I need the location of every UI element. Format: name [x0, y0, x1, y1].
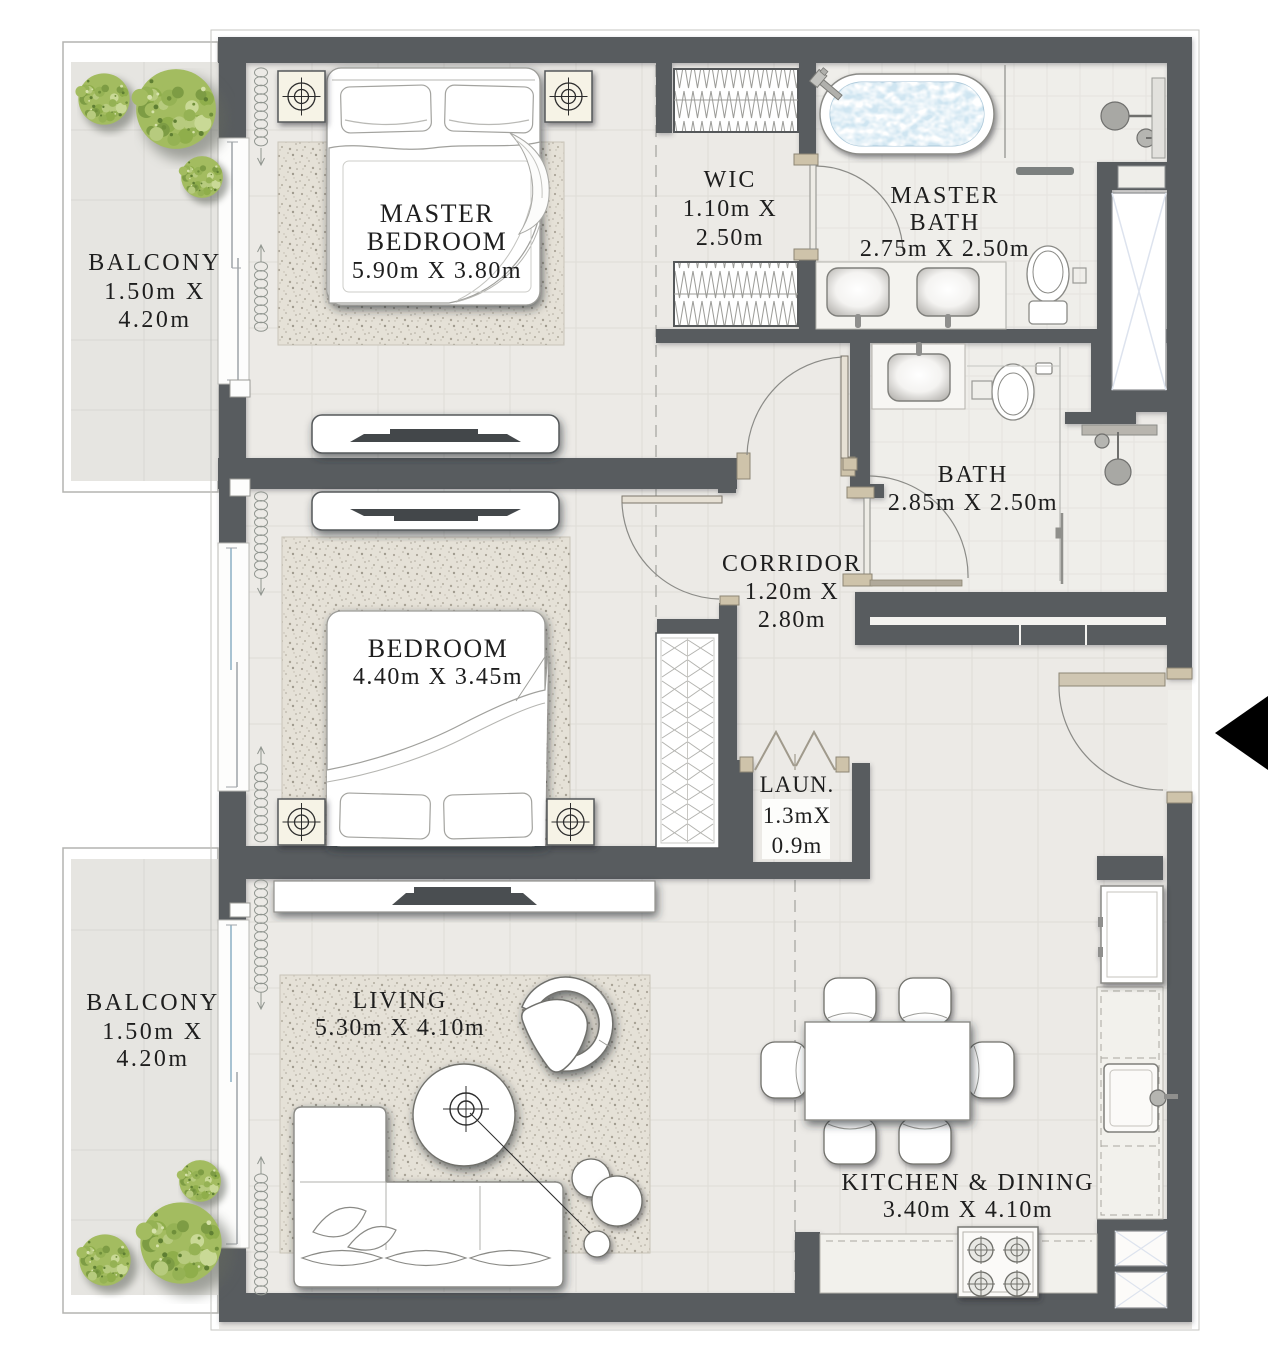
svg-text:BALCONY: BALCONY: [88, 250, 222, 276]
svg-text:4.20m: 4.20m: [118, 307, 191, 333]
svg-text:5.30m X 4.10m: 5.30m X 4.10m: [315, 1015, 485, 1041]
svg-text:LAUN.: LAUN.: [760, 772, 835, 797]
svg-text:BEDROOM: BEDROOM: [367, 227, 508, 256]
svg-text:CORRIDOR: CORRIDOR: [722, 551, 862, 577]
svg-text:BATH: BATH: [938, 462, 1009, 488]
svg-text:2.85m X 2.50m: 2.85m X 2.50m: [888, 490, 1058, 516]
svg-text:1.3mX: 1.3mX: [763, 803, 831, 828]
svg-text:1.50m X: 1.50m X: [102, 1019, 204, 1045]
svg-text:0.9m: 0.9m: [772, 833, 823, 858]
svg-text:1.10m X: 1.10m X: [683, 196, 778, 222]
svg-text:5.90m X 3.80m: 5.90m X 3.80m: [352, 258, 522, 284]
svg-text:1.20m X: 1.20m X: [745, 579, 840, 605]
svg-text:LIVING: LIVING: [353, 988, 448, 1014]
svg-text:WIC: WIC: [704, 167, 757, 193]
svg-text:MASTER: MASTER: [380, 199, 494, 228]
svg-text:BALCONY: BALCONY: [86, 990, 220, 1016]
svg-text:2.75m X 2.50m: 2.75m X 2.50m: [860, 236, 1030, 262]
svg-text:4.40m X 3.45m: 4.40m X 3.45m: [353, 664, 523, 690]
svg-text:MASTER: MASTER: [890, 183, 999, 209]
svg-text:1.50m X: 1.50m X: [104, 279, 206, 305]
svg-text:2.50m: 2.50m: [696, 225, 764, 251]
svg-text:2.80m: 2.80m: [758, 607, 826, 633]
svg-text:BEDROOM: BEDROOM: [368, 634, 509, 663]
svg-text:BATH: BATH: [910, 210, 981, 236]
svg-text:4.20m: 4.20m: [116, 1046, 189, 1072]
svg-text:3.40m X 4.10m: 3.40m X 4.10m: [883, 1197, 1053, 1223]
svg-text:KITCHEN & DINING: KITCHEN & DINING: [841, 1170, 1094, 1196]
